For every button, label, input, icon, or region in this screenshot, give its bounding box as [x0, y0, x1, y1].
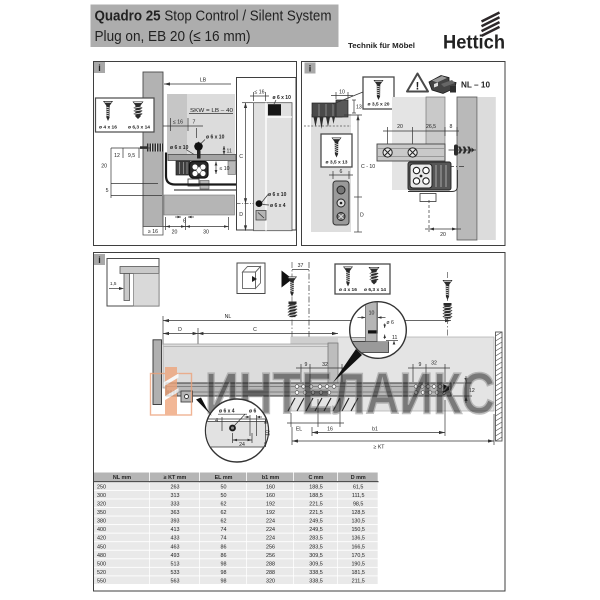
svg-text:Hettich: Hettich: [443, 33, 505, 54]
svg-text:493: 493: [171, 553, 180, 559]
svg-text:10: 10: [339, 90, 345, 96]
svg-text:128,5: 128,5: [351, 510, 365, 516]
svg-text:5: 5: [106, 188, 109, 194]
svg-text:513: 513: [171, 561, 180, 567]
svg-text:190,5: 190,5: [351, 561, 365, 567]
svg-text:ø 4 x 16: ø 4 x 16: [339, 287, 357, 293]
svg-text:≤ 10: ≤ 10: [220, 166, 230, 172]
svg-text:333: 333: [171, 502, 180, 508]
svg-text:413: 413: [171, 527, 180, 533]
svg-text:86: 86: [221, 544, 227, 550]
svg-text:9,5: 9,5: [128, 153, 135, 159]
svg-text:37: 37: [298, 263, 304, 269]
svg-text:350: 350: [97, 510, 106, 516]
svg-text:263: 263: [171, 484, 180, 490]
svg-text:283,5: 283,5: [309, 544, 323, 550]
svg-text:98: 98: [221, 570, 227, 576]
svg-text:500: 500: [97, 561, 106, 567]
svg-text:563: 563: [171, 578, 180, 584]
svg-text:10: 10: [369, 311, 375, 317]
svg-text:192: 192: [266, 502, 275, 508]
svg-text:EL mm: EL mm: [215, 475, 233, 481]
svg-text:50: 50: [221, 493, 227, 499]
svg-text:188,5: 188,5: [309, 484, 323, 490]
svg-text:224: 224: [266, 527, 275, 533]
svg-text:ø 3,5 x 13: ø 3,5 x 13: [325, 160, 347, 166]
svg-text:Plug on, EB 20 (≤ 16 mm): Plug on, EB 20 (≤ 16 mm): [95, 28, 251, 45]
svg-text:313: 313: [171, 493, 180, 499]
svg-text:13: 13: [356, 105, 362, 111]
svg-text:Quadro 25 Stop Control / Silen: Quadro 25 Stop Control / Silent System: [95, 8, 332, 25]
svg-text:98,5: 98,5: [353, 502, 364, 508]
svg-text:4: 4: [215, 418, 218, 424]
svg-text:16: 16: [327, 427, 333, 433]
svg-text:C: C: [239, 154, 243, 160]
svg-text:62: 62: [221, 519, 227, 525]
svg-text:≥ KT: ≥ KT: [374, 445, 386, 451]
svg-text:288: 288: [266, 570, 275, 576]
svg-text:ø 6 x 10: ø 6 x 10: [170, 145, 189, 151]
svg-text:300: 300: [97, 493, 106, 499]
svg-text:363: 363: [171, 510, 180, 516]
svg-text:ø 6 x 10: ø 6 x 10: [206, 135, 225, 141]
svg-text:393: 393: [171, 519, 180, 525]
svg-text:D: D: [239, 212, 243, 218]
svg-text:136,5: 136,5: [351, 536, 365, 542]
svg-text:150,5: 150,5: [351, 527, 365, 533]
svg-text:EL: EL: [296, 427, 302, 433]
svg-text:250: 250: [97, 484, 106, 490]
svg-text:50: 50: [221, 484, 227, 490]
svg-text:6: 6: [340, 169, 343, 175]
svg-text:98: 98: [221, 561, 227, 567]
svg-text:20: 20: [172, 230, 178, 236]
svg-text:7: 7: [193, 120, 196, 126]
svg-text:11: 11: [392, 335, 397, 341]
svg-text:LB: LB: [200, 78, 207, 84]
svg-text:i: i: [309, 64, 312, 74]
svg-text:166,5: 166,5: [351, 544, 365, 550]
svg-text:ø 6,3 x 14: ø 6,3 x 14: [364, 287, 386, 293]
svg-text:288: 288: [266, 561, 275, 567]
svg-text:249,5: 249,5: [309, 519, 323, 525]
svg-text:D: D: [178, 327, 182, 333]
svg-text:≤ 16: ≤ 16: [173, 120, 183, 126]
svg-text:≥ 16: ≥ 16: [148, 229, 158, 235]
svg-text:224: 224: [266, 536, 275, 542]
svg-text:ø 6 x 4: ø 6 x 4: [270, 203, 286, 209]
svg-text:NL – 10: NL – 10: [461, 81, 491, 90]
svg-text:62: 62: [221, 502, 227, 508]
svg-text:98: 98: [221, 578, 227, 584]
svg-text:C - 10: C - 10: [361, 164, 375, 170]
svg-text:24: 24: [239, 442, 245, 448]
svg-text:338,5: 338,5: [309, 570, 323, 576]
svg-text:74: 74: [221, 536, 227, 542]
svg-text:86: 86: [221, 553, 227, 559]
svg-text:520: 520: [97, 570, 106, 576]
svg-text:≥ KT mm: ≥ KT mm: [164, 475, 187, 481]
svg-text:12: 12: [114, 153, 120, 159]
svg-text:480: 480: [97, 553, 106, 559]
svg-text:338,5: 338,5: [309, 578, 323, 584]
svg-text:256: 256: [266, 553, 275, 559]
svg-text:170,5: 170,5: [351, 553, 365, 559]
svg-text:181,5: 181,5: [351, 570, 365, 576]
svg-text:533: 533: [171, 570, 180, 576]
svg-text:550: 550: [97, 578, 106, 584]
svg-text:Technik für Möbel: Technik für Möbel: [348, 41, 415, 50]
svg-text:111,5: 111,5: [352, 493, 365, 499]
svg-text:1,5: 1,5: [110, 281, 117, 286]
svg-text:463: 463: [171, 544, 180, 550]
svg-text:192: 192: [266, 510, 275, 516]
svg-text:D: D: [360, 213, 364, 219]
svg-text:ø 6,3 x 14: ø 6,3 x 14: [128, 125, 150, 131]
svg-text:i: i: [98, 255, 101, 265]
svg-text:224: 224: [266, 519, 275, 525]
svg-text:20: 20: [397, 124, 403, 130]
svg-text:ø 4 x 16: ø 4 x 16: [99, 125, 117, 131]
svg-text:62: 62: [221, 510, 227, 516]
svg-text:249,5: 249,5: [309, 527, 323, 533]
svg-text:256: 256: [266, 544, 275, 550]
svg-text:320: 320: [97, 502, 106, 508]
svg-text:b1: b1: [372, 427, 378, 433]
svg-text:30: 30: [203, 230, 209, 236]
svg-text:i: i: [98, 63, 101, 73]
svg-text:ø 6: ø 6: [386, 320, 394, 326]
svg-text:221,5: 221,5: [309, 502, 323, 508]
svg-text:11: 11: [227, 149, 232, 155]
svg-text:b1 mm: b1 mm: [262, 475, 280, 481]
svg-text:309,5: 309,5: [309, 553, 323, 559]
svg-text:C mm: C mm: [309, 475, 324, 481]
svg-text:SKW = LB – 40: SKW = LB – 40: [190, 108, 233, 114]
svg-text:20: 20: [440, 232, 446, 238]
svg-text:ø 3,5 x 20: ø 3,5 x 20: [367, 102, 389, 108]
svg-text:160: 160: [266, 493, 275, 499]
svg-text:ø 6 x 4: ø 6 x 4: [219, 409, 235, 415]
svg-text:8: 8: [450, 124, 453, 130]
svg-text:61,5: 61,5: [353, 484, 364, 490]
svg-text:320: 320: [266, 578, 275, 584]
svg-text:283,5: 283,5: [309, 536, 323, 542]
svg-text:26,5: 26,5: [426, 124, 436, 130]
svg-text:ø 6 x 10: ø 6 x 10: [273, 95, 292, 101]
svg-text:160: 160: [266, 484, 275, 490]
svg-text:420: 420: [97, 536, 106, 542]
svg-text:NL mm: NL mm: [113, 475, 131, 481]
svg-text:74: 74: [221, 527, 227, 533]
svg-text:188,5: 188,5: [309, 493, 323, 499]
svg-text:!: !: [416, 81, 420, 93]
svg-text:221,5: 221,5: [309, 510, 323, 516]
svg-text:C: C: [253, 327, 257, 333]
svg-text:400: 400: [97, 527, 106, 533]
svg-text:D mm: D mm: [351, 475, 366, 481]
svg-text:20: 20: [101, 164, 107, 170]
svg-text:ø 6 x 10: ø 6 x 10: [268, 192, 287, 198]
svg-text:433: 433: [171, 536, 180, 542]
svg-text:10: 10: [266, 430, 272, 436]
svg-text:ø 6: ø 6: [249, 409, 256, 415]
svg-text:211,5: 211,5: [352, 578, 365, 584]
svg-text:NL: NL: [225, 314, 232, 320]
svg-text:309,5: 309,5: [309, 561, 323, 567]
svg-text:380: 380: [97, 519, 106, 525]
svg-text:≤ 16: ≤ 16: [254, 90, 264, 96]
svg-text:130,5: 130,5: [351, 519, 365, 525]
svg-text:450: 450: [97, 544, 106, 550]
